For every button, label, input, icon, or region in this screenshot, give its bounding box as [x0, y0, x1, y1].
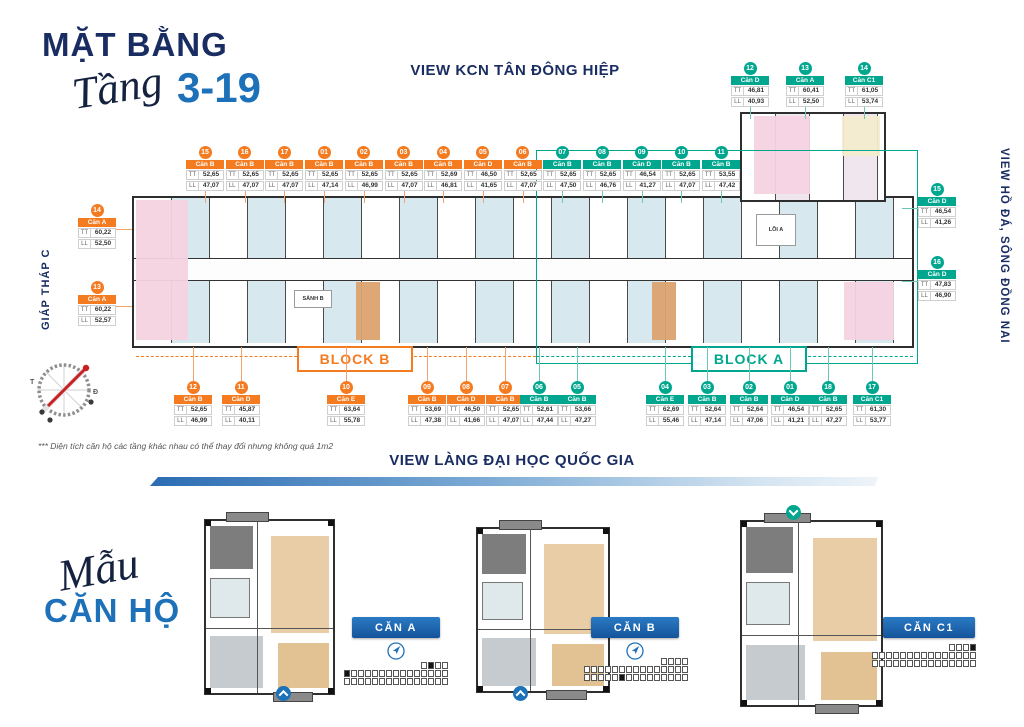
area-value-tt: 61,30: [866, 406, 890, 414]
area-label: TT: [521, 406, 533, 414]
unit-type-label: Căn B: [543, 160, 581, 169]
leader-line: [116, 306, 132, 307]
area-label: TT: [919, 281, 931, 289]
unit-card: 01Căn BTT52,65LL47,14: [305, 146, 343, 191]
unit-area-row: LL52,57: [78, 316, 116, 326]
leader-line: [364, 191, 365, 203]
area-label: TT: [584, 171, 596, 179]
area-label: LL: [663, 182, 675, 190]
area-label: TT: [328, 406, 340, 414]
unit-card: 17Căn C1TT61,30LL53,77: [853, 381, 891, 426]
unit-number-badge: 15: [199, 146, 212, 159]
unit-number-badge: 12: [187, 381, 200, 394]
unit-number-badge: 16: [238, 146, 251, 159]
leader-line: [324, 191, 325, 203]
unit-area-row: TT60,22: [78, 228, 116, 238]
unit-type-label: Căn B: [504, 160, 542, 169]
unit-area-row: LL55,46: [646, 416, 684, 426]
area-label: TT: [703, 171, 715, 179]
area-value-ll: 46,76: [596, 182, 620, 190]
unit-type-label: Căn B: [424, 160, 462, 169]
unit-type-label: Căn B: [662, 160, 700, 169]
area-value-ll: 47,07: [675, 182, 699, 190]
area-value-tt: 46,50: [460, 406, 484, 414]
area-label: LL: [703, 182, 715, 190]
unit-card: 04Căn BTT52,69LL46,81: [424, 146, 462, 191]
area-label: LL: [731, 417, 743, 425]
unit-area-row: LL41,21: [771, 416, 809, 426]
area-label: LL: [409, 417, 421, 425]
area-value-tt: 52,65: [596, 171, 620, 179]
unit-type-label: Căn B: [408, 395, 446, 404]
area-label: LL: [772, 417, 784, 425]
unit-area-row: TT61,30: [853, 405, 891, 415]
unit-number-badge: 17: [278, 146, 291, 159]
area-label: LL: [386, 182, 398, 190]
unit-card: 11Căn DTT45,87LL40,11: [222, 381, 260, 426]
area-value-ll: 55,46: [659, 417, 683, 425]
unit-number-badge: 15: [931, 183, 944, 196]
area-value-ll: 46,99: [187, 417, 211, 425]
area-value-tt: 52,65: [278, 171, 302, 179]
area-label: LL: [689, 417, 701, 425]
area-value-tt: 52,65: [517, 171, 541, 179]
area-value-ll: 52,50: [799, 98, 823, 106]
unit-type-label: Căn E: [327, 395, 365, 404]
unit-card: 07Căn BTT52,65LL47,07: [486, 381, 524, 426]
area-label: TT: [544, 171, 556, 179]
area-label: TT: [266, 171, 278, 179]
floor-plan-page: MẶT BẰNG Tầng 3-19 VIEW KCN TÂN ĐÔNG HIỆ…: [0, 0, 1024, 727]
leader-line: [483, 191, 484, 203]
area-value-tt: 52,61: [533, 406, 557, 414]
unit-number-badge: 13: [91, 281, 104, 294]
area-label: LL: [328, 417, 340, 425]
unit-number-badge: 07: [499, 381, 512, 394]
area-label: TT: [175, 406, 187, 414]
leader-line: [602, 191, 603, 203]
area-label: TT: [79, 229, 91, 237]
unit-number-badge: 08: [460, 381, 473, 394]
unit-area-row: LL47,42: [702, 181, 740, 191]
unit-number-badge: 14: [858, 62, 871, 75]
unit-area-row: TT53,55: [702, 170, 740, 180]
unit-number-badge: 02: [743, 381, 756, 394]
unit-area-row: TT52,64: [730, 405, 768, 415]
area-value-tt: 53,55: [715, 171, 739, 179]
unit-type-label: Căn C1: [853, 395, 891, 404]
unit-area-row: LL41,66: [447, 416, 485, 426]
area-label: LL: [79, 317, 91, 325]
unit-card: 04Căn ETT62,69LL55,46: [646, 381, 684, 426]
unit-type-label: Căn B: [385, 160, 423, 169]
unit-type-label: Căn D: [623, 160, 661, 169]
area-label: LL: [487, 417, 499, 425]
area-label: TT: [732, 87, 744, 95]
area-value-tt: 63,64: [340, 406, 364, 414]
area-label: TT: [79, 306, 91, 314]
unit-number-badge: 10: [340, 381, 353, 394]
unit-card: 16Căn BTT52,65LL47,07: [226, 146, 264, 191]
leader-line: [665, 347, 666, 381]
area-label: TT: [227, 171, 239, 179]
area-value-ll: 47,14: [318, 182, 342, 190]
unit-type-label: Căn C1: [845, 76, 883, 85]
area-value-tt: 60,41: [799, 87, 823, 95]
unit-type-label: Căn B: [226, 160, 264, 169]
area-label: TT: [624, 171, 636, 179]
leader-line: [790, 347, 791, 381]
unit-card: 01Căn DTT46,54LL41,21: [771, 381, 809, 426]
unit-area-row: LL47,14: [688, 416, 726, 426]
unit-type-label: Căn B: [345, 160, 383, 169]
leader-line: [284, 191, 285, 203]
unit-area-row: LL46,99: [345, 181, 383, 191]
leader-line: [872, 347, 873, 381]
area-label: LL: [266, 182, 278, 190]
area-label: TT: [223, 406, 235, 414]
area-value-ll: 47,07: [239, 182, 263, 190]
unit-number-badge: 05: [476, 146, 489, 159]
unit-area-row: TT52,65: [504, 170, 542, 180]
unit-area-row: TT52,65: [265, 170, 303, 180]
unit-number-badge: 06: [516, 146, 529, 159]
unit-card: 02Căn BTT52,65LL46,99: [345, 146, 383, 191]
leader-line: [828, 347, 829, 381]
area-label: TT: [346, 171, 358, 179]
unit-area-row: LL47,06: [730, 416, 768, 426]
area-value-tt: 52,69: [437, 171, 461, 179]
unit-area-row: LL41,65: [464, 181, 502, 191]
area-label: TT: [505, 171, 517, 179]
area-label: TT: [919, 208, 931, 216]
area-label: LL: [787, 98, 799, 106]
area-value-tt: 46,54: [636, 171, 660, 179]
unit-area-row: LL40,93: [731, 97, 769, 107]
area-value-ll: 47,07: [278, 182, 302, 190]
area-label: TT: [731, 406, 743, 414]
unit-area-row: TT52,61: [520, 405, 558, 415]
unit-number-badge: 11: [715, 146, 728, 159]
unit-area-row: LL46,76: [583, 181, 621, 191]
area-label: LL: [227, 182, 239, 190]
area-label: TT: [187, 171, 199, 179]
area-label: LL: [521, 417, 533, 425]
leader-line: [193, 347, 194, 381]
leader-line: [642, 191, 643, 203]
area-label: TT: [810, 406, 822, 414]
area-label: LL: [732, 98, 744, 106]
unit-card: 12Căn BTT52,65LL46,99: [174, 381, 212, 426]
unit-card: 08Căn DTT46,50LL41,66: [447, 381, 485, 426]
area-value-tt: 60,22: [91, 306, 115, 314]
area-value-tt: 46,50: [477, 171, 501, 179]
leader-line: [562, 191, 563, 203]
area-value-tt: 46,54: [931, 208, 955, 216]
area-value-tt: 62,69: [659, 406, 683, 414]
area-value-ll: 41,66: [460, 417, 484, 425]
area-value-tt: 46,54: [784, 406, 808, 414]
area-label: TT: [487, 406, 499, 414]
unit-card: 15Căn DTT46,54LL41,26: [918, 183, 956, 228]
unit-type-label: Căn B: [520, 395, 558, 404]
area-value-ll: 47,07: [517, 182, 541, 190]
unit-area-row: TT52,65: [174, 405, 212, 415]
unit-card: 15Căn BTT52,65LL47,07: [186, 146, 224, 191]
unit-area-row: LL47,07: [186, 181, 224, 191]
area-label: TT: [647, 406, 659, 414]
area-value-ll: 46,81: [437, 182, 461, 190]
area-label: TT: [386, 171, 398, 179]
unit-area-row: LL46,99: [174, 416, 212, 426]
unit-area-row: TT60,22: [78, 305, 116, 315]
unit-area-row: TT46,81: [731, 86, 769, 96]
unit-card: 14Căn ATT60,22LL52,50: [78, 204, 116, 249]
unit-number-badge: 09: [635, 146, 648, 159]
unit-area-row: TT52,65: [305, 170, 343, 180]
unit-area-row: TT46,54: [771, 405, 809, 415]
area-label: LL: [919, 219, 931, 227]
leader-line: [805, 107, 806, 119]
leader-line: [427, 347, 428, 381]
area-label: TT: [689, 406, 701, 414]
area-label: TT: [854, 406, 866, 414]
unit-type-label: Căn D: [447, 395, 485, 404]
area-value-ll: 46,99: [358, 182, 382, 190]
unit-area-row: TT47,83: [918, 280, 956, 290]
area-label: LL: [79, 240, 91, 248]
unit-area-row: TT52,65: [486, 405, 524, 415]
area-label: LL: [465, 182, 477, 190]
unit-card: 06Căn BTT52,61LL47,44: [520, 381, 558, 426]
area-label: LL: [846, 98, 858, 106]
area-label: TT: [465, 171, 477, 179]
area-value-tt: 45,87: [235, 406, 259, 414]
area-label: LL: [346, 182, 358, 190]
unit-area-row: LL53,77: [853, 416, 891, 426]
unit-card: 12Căn DTT46,81LL40,93: [731, 62, 769, 107]
unit-type-label: Căn D: [918, 270, 956, 279]
unit-area-row: LL41,27: [623, 181, 661, 191]
unit-number-badge: 08: [596, 146, 609, 159]
unit-card: 05Căn DTT46,50LL41,65: [464, 146, 502, 191]
area-label: TT: [306, 171, 318, 179]
leader-line: [346, 347, 347, 381]
area-label: LL: [223, 417, 235, 425]
area-value-tt: 52,65: [318, 171, 342, 179]
leader-line: [577, 347, 578, 381]
unit-area-row: TT52,65: [226, 170, 264, 180]
unit-area-row: LL47,07: [504, 181, 542, 191]
area-value-tt: 52,65: [199, 171, 223, 179]
area-value-ll: 47,27: [822, 417, 846, 425]
area-label: LL: [919, 292, 931, 300]
area-value-ll: 47,14: [701, 417, 725, 425]
unit-area-row: LL46,90: [918, 291, 956, 301]
unit-area-row: TT45,87: [222, 405, 260, 415]
leader-line: [466, 347, 467, 381]
unit-type-label: Căn B: [688, 395, 726, 404]
unit-type-label: Căn A: [786, 76, 824, 85]
unit-area-row: TT63,64: [327, 405, 365, 415]
unit-type-label: Căn B: [809, 395, 847, 404]
area-value-tt: 52,65: [556, 171, 580, 179]
unit-area-row: LL47,14: [305, 181, 343, 191]
area-value-tt: 52,64: [743, 406, 767, 414]
area-value-ll: 52,57: [91, 317, 115, 325]
unit-number-badge: 03: [397, 146, 410, 159]
area-label: LL: [584, 182, 596, 190]
area-value-tt: 61,05: [858, 87, 882, 95]
area-value-tt: 52,65: [398, 171, 422, 179]
leader-line: [721, 191, 722, 203]
leader-line: [443, 191, 444, 203]
area-label: TT: [425, 171, 437, 179]
area-value-ll: 52,50: [91, 240, 115, 248]
area-value-ll: 41,21: [784, 417, 808, 425]
unit-area-row: LL47,07: [662, 181, 700, 191]
unit-number-badge: 12: [744, 62, 757, 75]
area-label: LL: [854, 417, 866, 425]
area-value-tt: 53,66: [571, 406, 595, 414]
unit-area-row: LL52,50: [786, 97, 824, 107]
unit-area-row: LL47,07: [226, 181, 264, 191]
leader-line: [205, 191, 206, 203]
area-value-ll: 53,77: [866, 417, 890, 425]
area-value-ll: 55,78: [340, 417, 364, 425]
unit-card: 13Căn ATT60,41LL52,50: [786, 62, 824, 107]
unit-type-label: Căn D: [771, 395, 809, 404]
area-value-tt: 53,69: [421, 406, 445, 414]
area-label: LL: [175, 417, 187, 425]
area-label: LL: [448, 417, 460, 425]
unit-area-row: LL47,27: [558, 416, 596, 426]
unit-area-row: LL47,27: [809, 416, 847, 426]
unit-area-row: TT46,50: [447, 405, 485, 415]
area-value-tt: 52,65: [239, 171, 263, 179]
unit-type-label: Căn B: [265, 160, 303, 169]
unit-cards-layer: 15Căn BTT52,65LL47,0716Căn BTT52,65LL47,…: [0, 0, 1024, 727]
area-label: TT: [409, 406, 421, 414]
unit-card: 16Căn DTT47,83LL46,90: [918, 256, 956, 301]
area-value-ll: 47,38: [421, 417, 445, 425]
area-label: LL: [559, 417, 571, 425]
leader-line: [245, 191, 246, 203]
unit-number-badge: 16: [931, 256, 944, 269]
area-value-ll: 47,06: [743, 417, 767, 425]
unit-card: 02Căn BTT52,64LL47,06: [730, 381, 768, 426]
area-value-ll: 47,42: [715, 182, 739, 190]
leader-line: [681, 191, 682, 203]
area-label: LL: [544, 182, 556, 190]
area-value-tt: 46,81: [744, 87, 768, 95]
unit-card: 18Căn BTT52,65LL47,27: [809, 381, 847, 426]
unit-area-row: TT61,05: [845, 86, 883, 96]
leader-line: [241, 347, 242, 381]
unit-area-row: LL47,07: [486, 416, 524, 426]
area-value-tt: 60,22: [91, 229, 115, 237]
area-value-ll: 41,65: [477, 182, 501, 190]
unit-card: 10Căn BTT52,65LL47,07: [662, 146, 700, 191]
area-value-ll: 40,93: [744, 98, 768, 106]
unit-type-label: Căn B: [486, 395, 524, 404]
area-label: LL: [306, 182, 318, 190]
area-label: LL: [505, 182, 517, 190]
unit-number-badge: 17: [866, 381, 879, 394]
unit-area-row: TT60,41: [786, 86, 824, 96]
unit-number-badge: 03: [701, 381, 714, 394]
leader-line: [523, 191, 524, 203]
area-value-tt: 47,83: [931, 281, 955, 289]
unit-number-badge: 04: [437, 146, 450, 159]
unit-area-row: TT52,65: [543, 170, 581, 180]
unit-number-badge: 02: [357, 146, 370, 159]
area-label: LL: [425, 182, 437, 190]
unit-type-label: Căn B: [730, 395, 768, 404]
unit-area-row: TT52,65: [385, 170, 423, 180]
unit-type-label: Căn B: [558, 395, 596, 404]
area-label: LL: [647, 417, 659, 425]
unit-area-row: LL47,07: [265, 181, 303, 191]
unit-card: 13Căn ATT60,22LL52,57: [78, 281, 116, 326]
unit-number-badge: 10: [675, 146, 688, 159]
unit-number-badge: 01: [784, 381, 797, 394]
leader-line: [750, 107, 751, 119]
leader-line: [116, 229, 132, 230]
unit-type-label: Căn D: [464, 160, 502, 169]
unit-area-row: TT52,65: [186, 170, 224, 180]
area-value-ll: 47,44: [533, 417, 557, 425]
unit-card: 07Căn BTT52,65LL47,50: [543, 146, 581, 191]
leader-line: [902, 208, 918, 209]
area-label: TT: [787, 87, 799, 95]
unit-type-label: Căn E: [646, 395, 684, 404]
unit-area-row: LL47,38: [408, 416, 446, 426]
unit-area-row: LL40,11: [222, 416, 260, 426]
unit-type-label: Căn B: [305, 160, 343, 169]
unit-number-badge: 18: [822, 381, 835, 394]
area-value-ll: 41,27: [636, 182, 660, 190]
unit-area-row: TT52,65: [662, 170, 700, 180]
unit-area-row: LL53,74: [845, 97, 883, 107]
unit-area-row: TT52,65: [809, 405, 847, 415]
area-value-ll: 47,07: [199, 182, 223, 190]
area-value-ll: 47,50: [556, 182, 580, 190]
unit-number-badge: 07: [556, 146, 569, 159]
area-value-ll: 40,11: [235, 417, 259, 425]
unit-type-label: Căn B: [174, 395, 212, 404]
leader-line: [902, 281, 918, 282]
area-label: TT: [448, 406, 460, 414]
area-value-ll: 47,07: [398, 182, 422, 190]
unit-area-row: LL47,44: [520, 416, 558, 426]
unit-number-badge: 01: [318, 146, 331, 159]
unit-number-badge: 11: [235, 381, 248, 394]
unit-area-row: LL47,07: [385, 181, 423, 191]
unit-type-label: Căn B: [583, 160, 621, 169]
unit-area-row: TT46,54: [918, 207, 956, 217]
unit-type-label: Căn D: [731, 76, 769, 85]
area-value-ll: 46,90: [931, 292, 955, 300]
unit-area-row: LL47,50: [543, 181, 581, 191]
area-value-tt: 52,65: [187, 406, 211, 414]
unit-card: 17Căn BTT52,65LL47,07: [265, 146, 303, 191]
area-value-tt: 52,65: [822, 406, 846, 414]
unit-card: 11Căn BTT53,55LL47,42: [702, 146, 740, 191]
unit-card: 09Căn DTT46,54LL41,27: [623, 146, 661, 191]
unit-area-row: LL46,81: [424, 181, 462, 191]
area-label: TT: [846, 87, 858, 95]
